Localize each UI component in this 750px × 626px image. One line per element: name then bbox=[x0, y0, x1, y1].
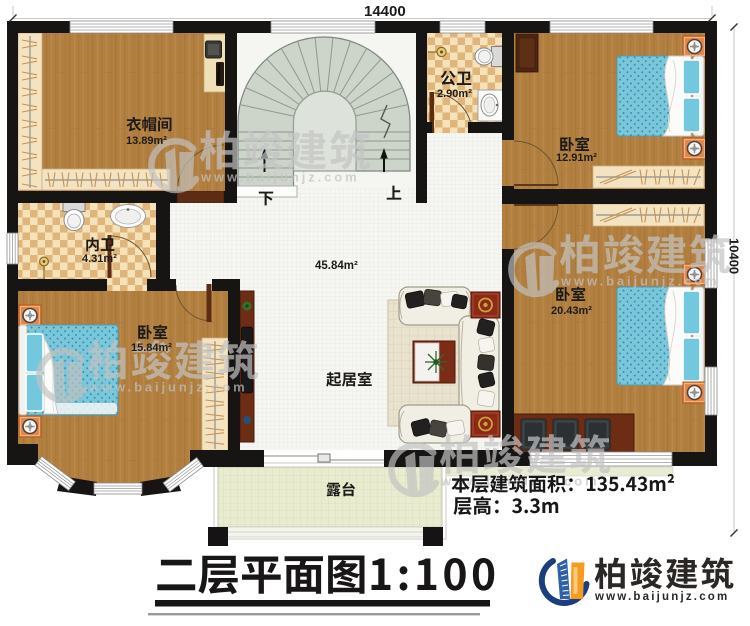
svg-text:4.31m²: 4.31m² bbox=[82, 253, 117, 265]
svg-text:10400: 10400 bbox=[727, 238, 742, 274]
svg-text:www.baijunjz.com: www.baijunjz.com bbox=[560, 274, 720, 289]
svg-text:2.90m²: 2.90m² bbox=[437, 88, 472, 100]
svg-text:45.84m²: 45.84m² bbox=[315, 260, 358, 272]
svg-text:20.43m²: 20.43m² bbox=[551, 305, 592, 317]
svg-text:12.91m²: 12.91m² bbox=[556, 152, 597, 164]
svg-text:www.baijunjz.com: www.baijunjz.com bbox=[594, 591, 729, 603]
svg-text:14400: 14400 bbox=[364, 3, 406, 20]
svg-text:13.89m²: 13.89m² bbox=[126, 135, 167, 147]
svg-text:www.baijunjz.com: www.baijunjz.com bbox=[88, 380, 248, 395]
svg-text:www.baijunjz.com: www.baijunjz.com bbox=[200, 170, 360, 185]
svg-text:15.84m²: 15.84m² bbox=[131, 342, 172, 354]
